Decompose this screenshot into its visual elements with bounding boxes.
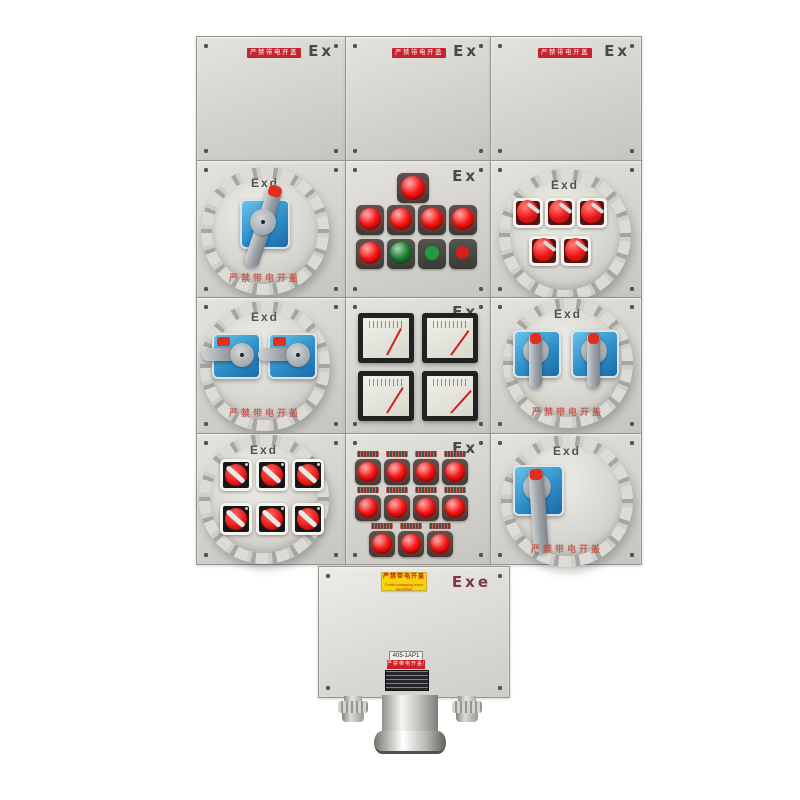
switch-handle (529, 332, 542, 388)
lamp-label (444, 487, 466, 493)
indicator-dot (281, 507, 284, 510)
red-indicator-lamp (358, 498, 378, 518)
red-indicator-lamp (401, 534, 421, 554)
red-indicator-lamp (421, 208, 443, 230)
lamp-base (384, 459, 410, 485)
button-housing (449, 239, 477, 269)
red-indicator-lamp (430, 534, 450, 554)
switch-panel: Exd (490, 160, 642, 299)
lamp-base (384, 495, 410, 521)
meter-needle (386, 387, 404, 414)
switch-panel: Exd 严禁带电开盖 (196, 160, 346, 299)
flameproof-round-cover: Exd (499, 169, 631, 301)
indicator-dot (317, 463, 320, 466)
ex-marking: Ex (604, 42, 630, 60)
cover-warning-text: 严禁带电开盖 (503, 405, 633, 418)
exd-marking: Exd (201, 176, 329, 190)
lamp-base (398, 531, 424, 557)
meter-panel: Ex (345, 297, 491, 434)
red-indicator-lamp (452, 208, 474, 230)
lamp-panel: Ex (345, 433, 491, 565)
lamp-base (355, 495, 381, 521)
blank-cover-panel: 严禁带电开盖 Ex (490, 36, 642, 161)
red-indicator-lamp (359, 208, 381, 230)
cover-warning-text: 严禁带电开盖 (200, 406, 330, 419)
meter-scale (433, 379, 468, 386)
handle-red-tip (588, 333, 599, 344)
handle-red-tip (273, 337, 286, 346)
handle-red-tip (217, 337, 230, 346)
red-toggle-switch (561, 236, 591, 266)
exd-marking: Exd (499, 178, 631, 192)
meter-needle (450, 330, 469, 355)
red-flat-button (456, 246, 469, 259)
lamp-label (400, 523, 422, 529)
cable-gland-large (382, 695, 438, 735)
indicator-dot (245, 507, 248, 510)
lamp-label (415, 451, 437, 457)
red-indicator-lamp (390, 208, 412, 230)
red-rotary-switch (292, 459, 324, 491)
ex-marking: Ex (453, 42, 479, 60)
flameproof-round-cover: Exd 严禁带电开盖 (501, 435, 633, 567)
red-toggle-switch (513, 198, 543, 228)
meter-needle (450, 390, 472, 414)
switch-hub (230, 343, 254, 367)
button-housing (418, 239, 446, 269)
exd-marking: Exd (503, 307, 633, 321)
switch-panel: Exd 严禁带电开盖 (490, 297, 642, 434)
red-warning-strip: 严禁带电开盖! (387, 660, 425, 669)
lamp-label (357, 487, 379, 493)
pushbutton-panel: Ex (345, 160, 491, 299)
red-indicator-lamp (416, 498, 436, 518)
cable-gland-tail (456, 713, 478, 722)
hub-dot (296, 353, 300, 357)
lamp-label (357, 451, 379, 457)
cover-face (510, 180, 620, 290)
warning-plate: 严禁带电开盖 (392, 48, 446, 58)
cable-gland-small (338, 701, 368, 713)
red-indicator-lamp (445, 462, 465, 482)
yellow-warning-en: Forbid uncapping when electrified (384, 583, 424, 592)
warning-plate: 严禁带电开盖 (538, 48, 592, 58)
lamp-label (371, 523, 393, 529)
red-toggle-switch (545, 198, 575, 228)
handle-red-tip (530, 333, 541, 344)
handle-red-tip (529, 469, 543, 481)
red-indicator-lamp (372, 534, 392, 554)
red-indicator-lamp (387, 462, 407, 482)
lamp-label (429, 523, 451, 529)
cover-warning-text: 严禁带电开盖 (501, 542, 633, 555)
red-rotary-switch (220, 503, 252, 535)
green-dome-button (390, 242, 412, 264)
red-indicator-lamp (358, 462, 378, 482)
button-housing (387, 239, 415, 269)
red-indicator-lamp (445, 498, 465, 518)
product-photo: 严禁带电开盖 Ex 严禁带电开盖 Ex 严禁带电开盖 Ex Exd 严禁带电开盖… (0, 0, 800, 800)
meter-needle (386, 328, 402, 355)
lamp-label (444, 451, 466, 457)
flameproof-round-cover: Exd 严禁带电开盖 (201, 167, 329, 295)
lamp-label (415, 487, 437, 493)
lamp-base (413, 459, 439, 485)
handle-red-tip (267, 184, 283, 198)
lamp-base (356, 239, 384, 269)
meter-scale (369, 321, 404, 328)
warning-plate: 严禁带电开盖 (247, 48, 301, 58)
lamp-base (418, 205, 446, 235)
switch-panel: Exd (196, 433, 346, 565)
meter-scale (433, 321, 468, 328)
green-flat-button (425, 246, 439, 260)
cable-gland-small (452, 701, 482, 713)
hub-dot (240, 353, 244, 357)
red-indicator-lamp (387, 498, 407, 518)
blank-cover-panel: 严禁带电开盖 Ex (196, 36, 346, 161)
cable-gland-flare (374, 731, 446, 754)
lamp-label (386, 487, 408, 493)
lamp-base (449, 205, 477, 235)
lamp-base (442, 495, 468, 521)
meter-scale (369, 379, 404, 386)
switch-hub (250, 209, 276, 235)
red-toggle-switch (577, 198, 607, 228)
lamp-base (427, 531, 453, 557)
exd-marking: Exd (199, 443, 329, 457)
junction-box: 严禁带电开盖 Forbid uncapping when electrified… (318, 566, 510, 698)
yellow-warning-label: 严禁带电开盖 Forbid uncapping when electrified (381, 572, 427, 591)
hub-dot (261, 220, 265, 224)
exd-marking: Exd (501, 444, 633, 458)
lamp-base (355, 459, 381, 485)
indicator-dot (281, 463, 284, 466)
lamp-base (369, 531, 395, 557)
analog-meter (358, 313, 414, 363)
red-indicator-lamp (416, 462, 436, 482)
nameplate (385, 670, 429, 691)
switch-hub (286, 343, 310, 367)
red-toggle-switch (529, 236, 559, 266)
switch-handle (587, 332, 600, 388)
flameproof-round-cover: Exd 严禁带电开盖 (200, 301, 330, 431)
cover-warning-text: 严禁带电开盖 (201, 271, 329, 284)
red-rotary-switch (256, 503, 288, 535)
lamp-base (442, 459, 468, 485)
ex-marking: Ex (452, 167, 478, 185)
exe-marking: Exe (452, 573, 491, 591)
flameproof-round-cover: Exd (199, 434, 329, 564)
switch-panel: Exd 严禁带电开盖 (196, 297, 346, 434)
red-rotary-switch (220, 459, 252, 491)
cable-gland-tail (342, 713, 364, 722)
red-indicator-lamp (401, 176, 425, 200)
analog-meter (358, 371, 414, 421)
lamp-base (413, 495, 439, 521)
red-rotary-switch (256, 459, 288, 491)
lamp-base (397, 173, 429, 203)
lamp-base (356, 205, 384, 235)
lamp-base (387, 205, 415, 235)
indicator-dot (317, 507, 320, 510)
red-rotary-switch (292, 503, 324, 535)
ex-marking: Ex (308, 42, 334, 60)
yellow-warning-cn: 严禁带电开盖 (382, 573, 426, 582)
blank-cover-panel: 严禁带电开盖 Ex (345, 36, 491, 161)
flameproof-round-cover: Exd 严禁带电开盖 (503, 298, 633, 428)
analog-meter (422, 371, 478, 421)
indicator-dot (245, 463, 248, 466)
red-indicator-lamp (359, 242, 381, 264)
lamp-label (386, 451, 408, 457)
switch-panel: Exd 严禁带电开盖 (490, 433, 642, 565)
analog-meter (422, 313, 478, 363)
exd-marking: Exd (200, 310, 330, 324)
